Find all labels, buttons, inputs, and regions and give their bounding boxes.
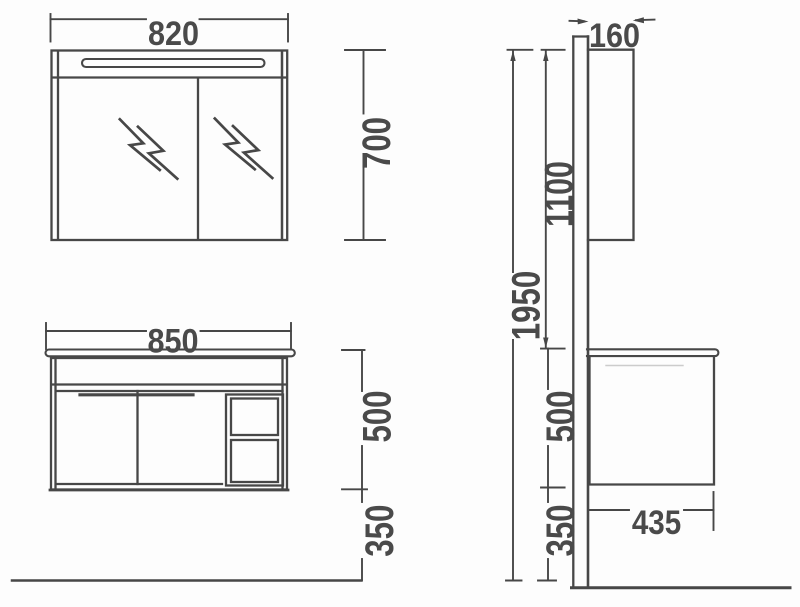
svg-text:350: 350 <box>357 505 402 557</box>
svg-text:1100: 1100 <box>536 161 581 227</box>
svg-text:500: 500 <box>355 390 400 442</box>
svg-text:500: 500 <box>538 390 583 442</box>
svg-text:1950: 1950 <box>504 271 549 340</box>
svg-text:350: 350 <box>538 504 583 556</box>
svg-text:820: 820 <box>148 15 199 53</box>
svg-text:850: 850 <box>147 322 198 360</box>
svg-text:160: 160 <box>589 17 640 55</box>
svg-text:700: 700 <box>354 117 399 169</box>
svg-text:435: 435 <box>632 503 681 541</box>
